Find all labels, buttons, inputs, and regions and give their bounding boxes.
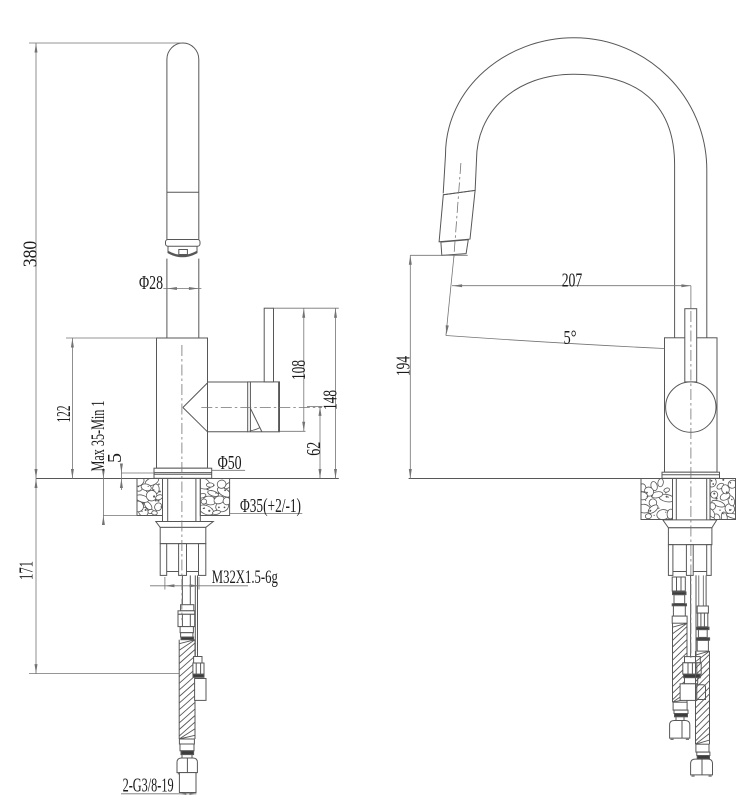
svg-text:Φ28: Φ28 <box>139 272 163 294</box>
svg-text:M32X1.5-6g: M32X1.5-6g <box>212 567 278 588</box>
svg-text:5°: 5° <box>564 327 577 349</box>
svg-text:108: 108 <box>288 360 310 380</box>
svg-text:380: 380 <box>20 241 42 268</box>
svg-text:Φ35(+2/-1): Φ35(+2/-1) <box>240 495 301 517</box>
svg-text:62: 62 <box>303 442 325 456</box>
svg-text:171: 171 <box>16 561 38 580</box>
svg-text:148: 148 <box>319 390 341 410</box>
svg-text:194: 194 <box>393 356 415 376</box>
svg-text:Φ50: Φ50 <box>218 452 242 474</box>
svg-text:2-G3/8-19: 2-G3/8-19 <box>123 776 174 797</box>
svg-text:122: 122 <box>53 406 75 423</box>
svg-text:207: 207 <box>562 269 583 291</box>
svg-text:5: 5 <box>104 453 126 463</box>
